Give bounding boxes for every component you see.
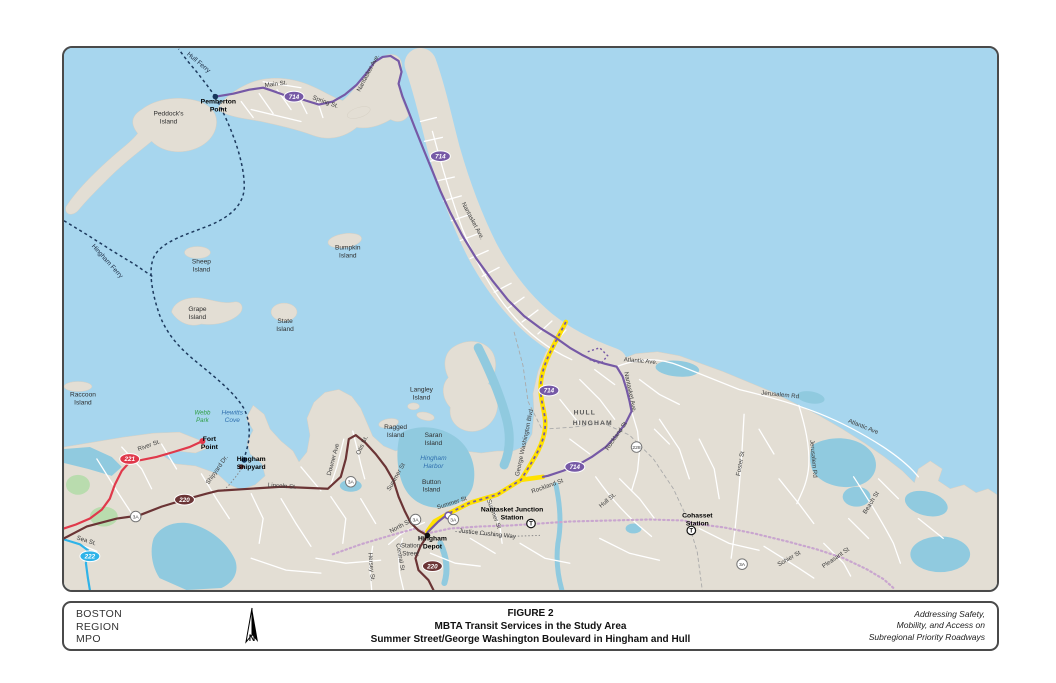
route-marker-label: 222 <box>84 553 96 560</box>
route-shield-label: 3A <box>412 517 419 523</box>
map-label: Peddock's <box>154 111 185 118</box>
tagline-line: Addressing Safety, <box>869 609 985 620</box>
route-marker-label: 714 <box>435 153 446 160</box>
map-label: Harbor <box>423 463 444 470</box>
map-label: Nantasket Junction <box>481 507 543 514</box>
island <box>408 403 420 410</box>
map-label: Station <box>401 542 421 549</box>
park-area <box>66 475 90 495</box>
map-label: Point <box>210 107 228 114</box>
figure-title-line1: MBTA Transit Services in the Study Area <box>64 620 997 633</box>
map-label: Station <box>686 520 709 527</box>
tagline-block: Addressing Safety, Mobility, and Access … <box>869 609 985 643</box>
route-marker-label: 221 <box>123 456 135 463</box>
map-label: Hewitts <box>222 409 244 416</box>
map-label: Island <box>193 266 211 273</box>
figure-label: FIGURE 2 <box>64 607 997 620</box>
map-label: Island <box>160 118 178 125</box>
route-shield-label: 228 <box>632 445 641 451</box>
map-label: Sheep <box>192 258 211 265</box>
tagline-line: Subregional Priority Roadways <box>869 632 985 643</box>
map-label: Cove <box>225 417 241 424</box>
route-shield-label: 3A <box>133 514 140 520</box>
pond <box>910 536 970 572</box>
pond <box>626 523 642 533</box>
route-shield-label: 3A <box>348 480 355 486</box>
map-label: Raccoon <box>70 391 96 398</box>
map-label: Grape <box>188 306 207 313</box>
route-marker-label: 714 <box>570 464 581 471</box>
map-label: Fort <box>203 436 217 443</box>
map-label: Depot <box>423 543 443 550</box>
map-label: Island <box>413 394 431 401</box>
figure-title-block: FIGURE 2 MBTA Transit Services in the St… <box>64 607 997 646</box>
map-label: Island <box>339 252 357 259</box>
map-label: Button <box>422 479 441 486</box>
map-label: Park <box>196 417 210 424</box>
map-panel: 3A3A3A3A3A228 TT 71471471471422022022122… <box>62 46 999 592</box>
map-label: HULL <box>574 409 596 416</box>
page: 3A3A3A3A3A228 TT 71471471471422022022122… <box>0 0 1056 683</box>
map-label: Bumpkin <box>335 245 361 252</box>
map-label: Island <box>425 440 443 447</box>
map-label: Station <box>501 515 524 522</box>
map-label: Langley <box>410 386 434 393</box>
map-label: Webb <box>194 409 211 416</box>
worlds-end <box>443 341 497 431</box>
map-label: Shipyard <box>237 464 266 471</box>
map-label: Hingham <box>420 455 447 462</box>
island <box>64 382 92 392</box>
t-station-letter: T <box>529 521 533 528</box>
route-marker-label: 220 <box>178 497 190 504</box>
map-label: Saran <box>425 432 443 439</box>
route-shield-label: 3A <box>739 562 746 568</box>
map-label: Ragged <box>384 424 407 431</box>
route-shield-label: 3A <box>450 517 457 523</box>
island <box>184 247 210 259</box>
map-label: Point <box>201 444 219 451</box>
t-station-letter: T <box>689 528 693 535</box>
route-marker-label: 220 <box>426 563 438 570</box>
map-label: Pemberton <box>201 99 236 106</box>
map-label: Island <box>74 399 92 406</box>
map-label: Hingham <box>418 535 447 542</box>
title-bar: BOSTON REGION MPO N FIGURE 2 MBTA Transi… <box>62 601 999 651</box>
map-label: Island <box>387 432 405 439</box>
map-label: Island <box>423 487 441 494</box>
map-label: HINGHAM <box>573 420 613 427</box>
route-marker-label: 714 <box>544 388 555 395</box>
map-svg: 3A3A3A3A3A228 TT 71471471471422022022122… <box>64 48 997 590</box>
figure-title-line2: Summer Street/George Washington Boulevar… <box>64 633 997 646</box>
map-label: Street <box>402 550 419 557</box>
tagline-line: Mobility, and Access on <box>869 620 985 631</box>
map-label: State <box>277 318 293 325</box>
route-marker-label: 714 <box>289 94 300 101</box>
map-label: Island <box>189 314 207 321</box>
map-label: Cohasset <box>682 513 713 520</box>
map-label: Island <box>276 326 294 333</box>
map-label: Hingham <box>237 456 266 463</box>
